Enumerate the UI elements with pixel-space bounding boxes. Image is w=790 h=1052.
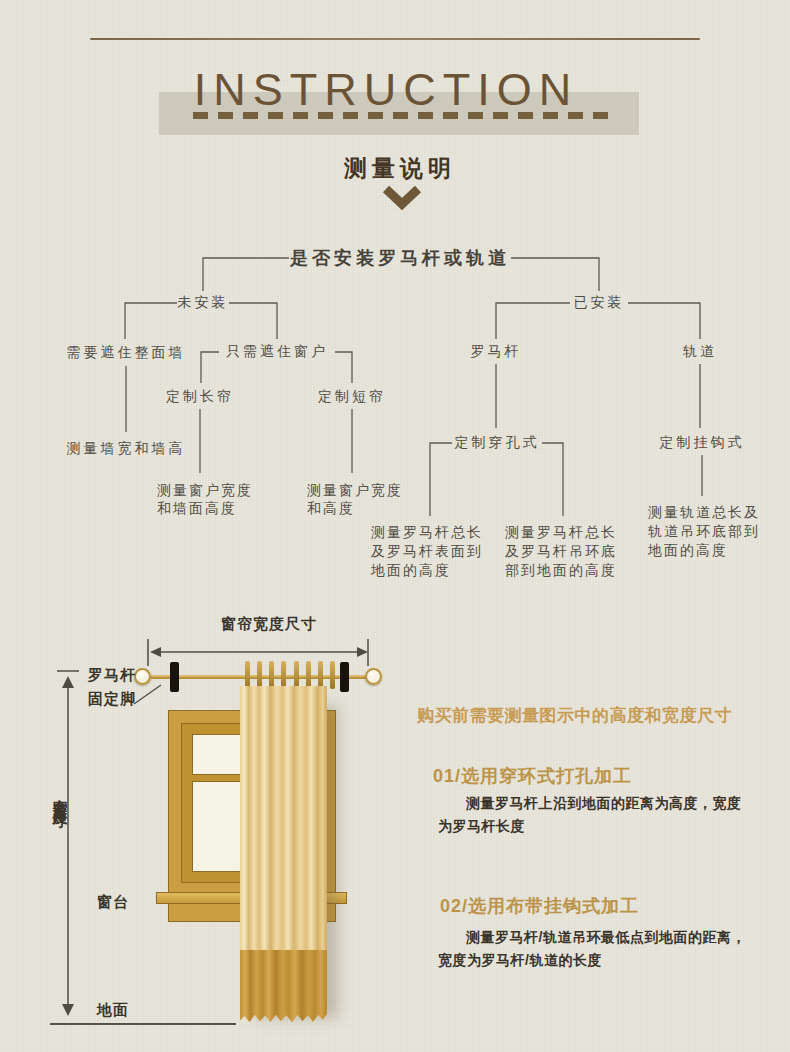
leaf-long-curtain-measure: 测量窗户宽度 和墙面高度: [157, 481, 253, 517]
node-roman-rod: 罗马杆: [471, 343, 522, 361]
flowchart-root: 是否安装罗马杆或轨道: [290, 246, 510, 270]
curtain-ring: [318, 661, 323, 689]
floor-label: 地面: [97, 1001, 129, 1020]
node-cover-wall: 需要遮住整面墙: [67, 344, 186, 362]
top-divider-rule: [90, 38, 700, 40]
curtain-ring: [245, 661, 250, 689]
leaf-rod-surface-measure: 测量罗马杆总长 及罗马杆表面到 地面的高度: [371, 523, 483, 580]
leaf-rod-ring-measure: 测量罗马杆总长 及罗马杆吊环底 部到地面的高度: [505, 523, 617, 580]
chevron-down-icon: [386, 189, 418, 204]
curtain-ring: [281, 661, 286, 689]
rod-bracket-right: [340, 662, 349, 692]
curtain-ring: [269, 661, 274, 689]
node-punch-style: 定制穿孔式: [455, 434, 540, 452]
rod-finial-right: [365, 668, 382, 685]
measurement-instruction-page: INSTRUCTION 测量说明: [0, 0, 790, 1052]
node-installed: 已安装: [574, 294, 625, 312]
page-subtitle: 测量说明: [344, 153, 456, 184]
rod-foot-label: 固定脚: [88, 690, 136, 709]
curtain-height-label: 窗帘高度尺寸: [50, 786, 69, 804]
node-track: 轨道: [683, 343, 717, 361]
purchase-measure-intro: 购买前需要测量图示中的高度和宽度尺寸: [417, 704, 732, 727]
rod-foot-pointer-line: [134, 685, 161, 704]
leaf-track-measure: 测量轨道总长及 轨道吊环底部到 地面的高度: [648, 503, 760, 560]
rod-finial-left: [134, 668, 151, 685]
roman-rod-label: 罗马杆: [88, 666, 136, 685]
step1-title: 01/选用穿环式打孔加工: [433, 764, 632, 788]
step1-body: 测量罗马杆上沿到地面的距离为高度，宽度为罗马杆长度: [438, 792, 750, 838]
curtain-panel: [240, 686, 327, 1024]
curtain-rings: [245, 661, 335, 689]
node-wall-measure: 测量墙宽和墙高: [67, 440, 186, 458]
leaf-short-curtain-measure: 测量窗户宽度 和高度: [307, 481, 403, 517]
curtain-ring: [294, 661, 299, 689]
node-long-curtain: 定制长帘: [166, 388, 234, 406]
windowsill-label: 窗台: [97, 893, 129, 912]
node-hook-style: 定制挂钩式: [660, 434, 745, 452]
page-title: INSTRUCTION: [194, 64, 579, 116]
curtain-ring: [306, 661, 311, 689]
step2-title: 02/选用布带挂钩式加工: [440, 894, 639, 918]
node-short-curtain: 定制短帘: [318, 388, 386, 406]
dashed-divider: [193, 112, 613, 119]
height-dimension-arrow: [57, 671, 79, 1016]
step2-body: 测量罗马杆/轨道吊环最低点到地面的距离，宽度为罗马杆/轨道的长度: [438, 926, 750, 972]
curtain-ring: [257, 661, 262, 689]
curtain-ring: [330, 661, 335, 689]
rod-bracket-left: [170, 662, 179, 692]
node-cover-window: 只需遮住窗户: [226, 343, 328, 361]
curtain-bottom-band: [240, 950, 327, 1024]
node-not-installed: 未安装: [178, 294, 229, 312]
curtain-width-label: 窗帘宽度尺寸: [221, 615, 317, 634]
